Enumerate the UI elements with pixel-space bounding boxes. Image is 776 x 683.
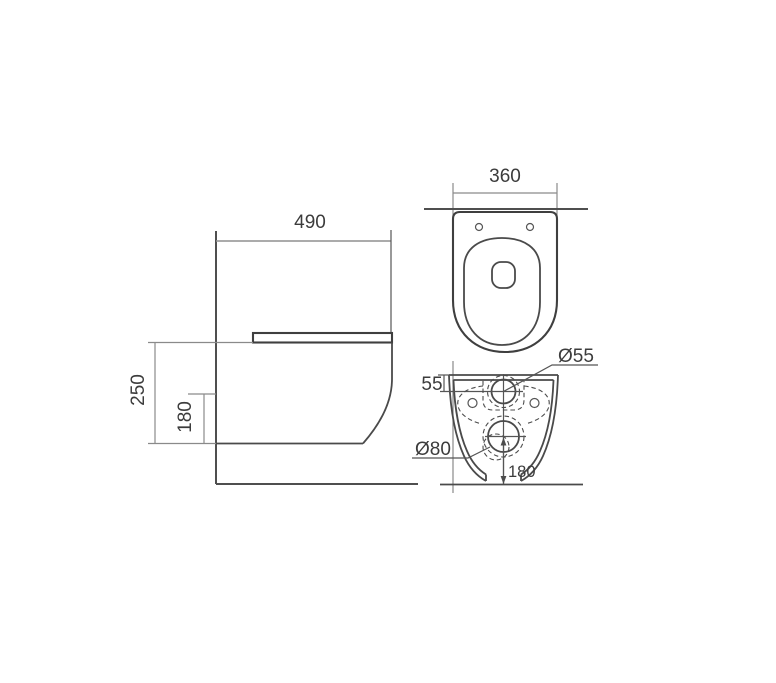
rear-view: 55 180 Ø55 Ø80	[412, 346, 598, 493]
channel-wing-right	[524, 386, 549, 424]
toilet-technical-drawing: 490 250 180 360	[0, 0, 776, 683]
dim-55-label: 55	[421, 374, 442, 395]
bowl-front-profile	[363, 343, 392, 444]
shell-left-inner	[454, 380, 487, 475]
toilet-seat-profile	[253, 333, 392, 343]
dim-180-arrow-down	[501, 476, 507, 484]
shell-right-inner	[521, 380, 554, 475]
dim-360-label: 360	[489, 166, 521, 187]
inlet-diameter-label: Ø55	[558, 346, 594, 367]
mounting-hole-left	[468, 399, 477, 408]
pan-outline-top	[453, 212, 557, 352]
dim-490-label: 490	[294, 212, 326, 233]
mounting-hole-right	[530, 399, 539, 408]
dim-180-rear-label: 180	[508, 463, 536, 481]
outlet-diameter-label: Ø80	[415, 439, 451, 460]
dim-180-side-label: 180	[175, 401, 196, 433]
inlet-leader-line	[504, 365, 599, 392]
technical-drawing-page: 490 250 180 360	[0, 0, 776, 683]
top-view: 360	[424, 166, 588, 352]
side-view: 490 250 180	[128, 212, 418, 484]
dim-250-label: 250	[128, 374, 149, 406]
